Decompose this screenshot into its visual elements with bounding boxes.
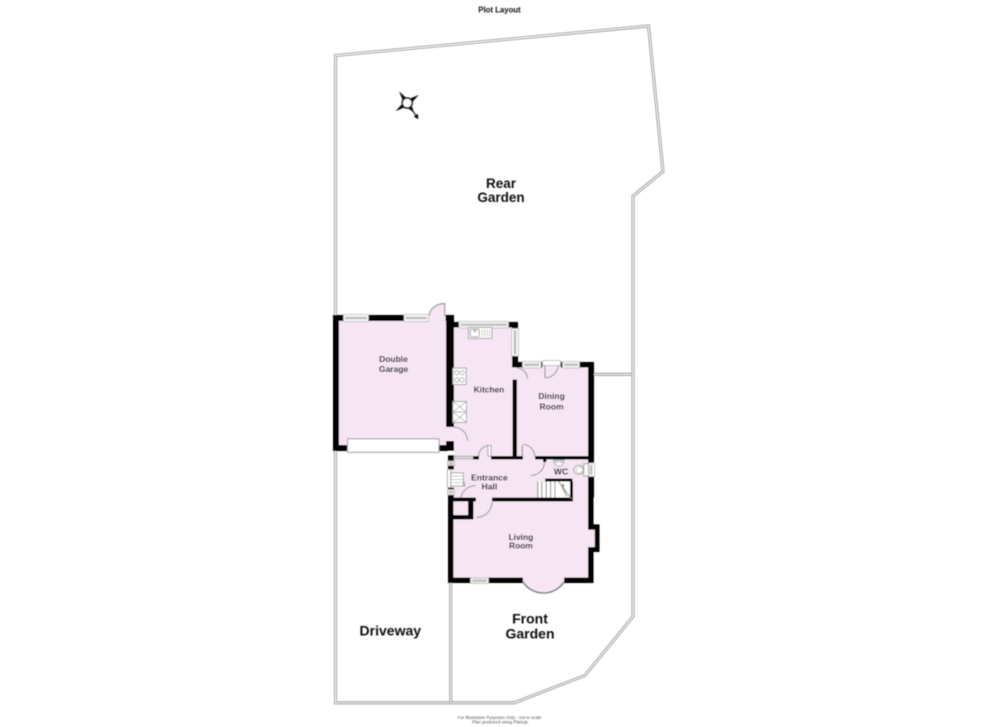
svg-text:Rear: Rear: [486, 176, 517, 191]
svg-text:Kitchen: Kitchen: [474, 385, 504, 395]
svg-text:Front: Front: [512, 611, 548, 627]
svg-text:Dining: Dining: [538, 391, 564, 401]
svg-text:Double: Double: [379, 354, 408, 364]
svg-text:Plan produced using PlanUp.: Plan produced using PlanUp.: [472, 720, 529, 725]
svg-text:Driveway: Driveway: [360, 623, 422, 639]
svg-text:Hall: Hall: [482, 481, 498, 491]
svg-text:Garage: Garage: [379, 364, 409, 374]
svg-text:Room: Room: [540, 402, 565, 412]
svg-text:WC: WC: [554, 466, 568, 476]
svg-text:Garden: Garden: [505, 625, 554, 641]
svg-text:Plot Layout: Plot Layout: [478, 6, 521, 15]
svg-text:Garden: Garden: [477, 190, 524, 205]
svg-text:Room: Room: [509, 541, 533, 551]
